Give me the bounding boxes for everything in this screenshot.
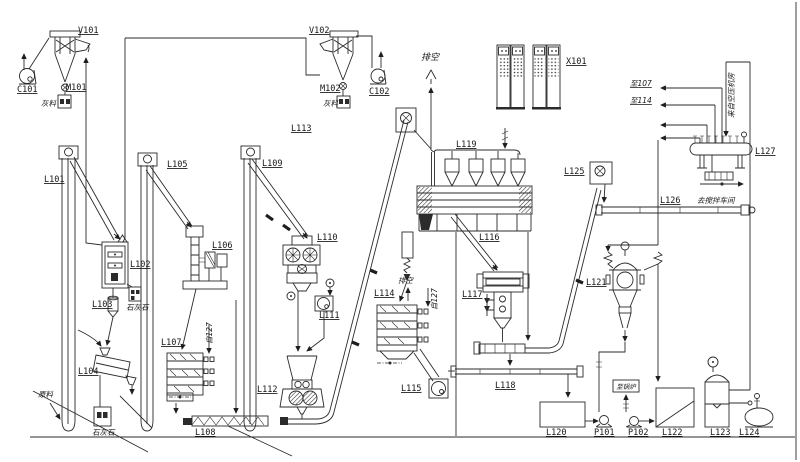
label-l116: L116 (479, 233, 499, 243)
label-l103: L103 (92, 300, 112, 310)
label-l113: L113 (291, 124, 311, 134)
limestone-label-b: 石灰石 (92, 428, 116, 437)
label-l111: L111 (319, 311, 339, 321)
cyclone-v101: C101 V101 M101 灰料 (17, 26, 102, 245)
from-127-label-b: 自127 (430, 288, 439, 310)
label-l117: L117 (462, 290, 482, 300)
label-c102: C102 (369, 87, 389, 97)
roller-mill-l110: L110 L111 (283, 233, 339, 351)
bag-filter-l114: 自127 排空 L114 L115 (374, 276, 455, 398)
label-l114: L114 (374, 289, 394, 299)
label-l122: L122 (662, 428, 682, 438)
dust-label-a: 灰料 (41, 99, 56, 108)
label-l106: L106 (212, 241, 232, 251)
label-l123: L123 (710, 428, 730, 438)
pump-p101: P101 (585, 416, 614, 439)
air-receiver-l123: L123 (705, 357, 752, 438)
label-c101: C101 (17, 85, 37, 95)
fan-c102-icon (371, 69, 385, 83)
control-cabinets-x101: X101 (496, 45, 586, 110)
to-mixing-room-label: 去搅拌车间 (697, 196, 736, 205)
dust-label-b: 灰料 (323, 99, 338, 108)
tank-l122: L122 (656, 388, 694, 438)
compressor-l124: L124 (739, 394, 773, 439)
label-v102: V102 (309, 26, 329, 36)
label-p101: P101 (594, 428, 614, 438)
label-l125: L125 (564, 167, 584, 177)
label-l112: L112 (257, 385, 277, 395)
fan-l115-icon (432, 382, 446, 396)
cabinet-icon (496, 45, 561, 110)
conveyor-l118: L118 (451, 366, 583, 397)
process-flow-diagram: 原料 C101 V101 M101 灰料 V102 M102 C102 灰料 排… (0, 0, 800, 462)
air-manifold-l127: 至107 至114 来自空压机房 L127 (630, 62, 775, 390)
bag-filter-l107: 自127 L107 (161, 300, 236, 413)
bin-l120: L120 (540, 402, 585, 438)
feeder-l117: L117 (462, 232, 529, 365)
fan-c101-icon (20, 69, 35, 84)
screen-l104: L104 石灰石 (78, 330, 136, 437)
label-l127: L127 (755, 147, 775, 157)
label-l109: L109 (262, 159, 282, 169)
elevator-l125: L125 (525, 162, 612, 353)
label-l105: L105 (167, 160, 187, 170)
vent-small-label: 排空 (398, 276, 414, 285)
conveyor-l126: L126 去搅拌车间 (596, 196, 755, 215)
to-107-label: 至107 (630, 79, 652, 88)
crusher-l112: L112 (257, 356, 324, 425)
pump-p102: 至锅炉 P102 (613, 380, 654, 438)
vent-stack: 排空 (421, 52, 440, 152)
label-m101: M101 (66, 83, 86, 93)
pump-icon (600, 416, 609, 425)
raw-material-label: 原料 (38, 390, 53, 399)
limestone-label-a: 石灰石 (126, 303, 150, 312)
label-l126: L126 (660, 196, 680, 206)
label-l108: L108 (195, 428, 215, 438)
label-l118: L118 (495, 381, 515, 391)
cyclone-battery-l119: L119 (400, 128, 532, 301)
label-l110: L110 (317, 233, 337, 243)
label-l115: L115 (401, 384, 421, 394)
label-l102: L102 (130, 260, 150, 270)
pump-icon (630, 417, 639, 426)
to-114-label: 至114 (630, 96, 652, 105)
label-l121: L121 (586, 278, 606, 288)
vent-top-label: 排空 (421, 52, 440, 63)
sender-vessel-l121: L121 (586, 140, 662, 412)
bucket-elevator-l105: L105 (138, 153, 192, 431)
bucket-elevator-l101: L101 (44, 146, 120, 431)
cyclone-cones-icon (445, 151, 525, 186)
from-127-label-a: 自127 (205, 322, 214, 344)
magnet-l103: L103 (92, 288, 118, 345)
from-air-compressor-label: 来自空压机房 (727, 72, 736, 118)
label-l119: L119 (456, 140, 476, 150)
diagram-canvas: 原料 C101 V101 M101 灰料 V102 M102 C102 灰料 排… (0, 0, 800, 462)
label-v101: V101 (78, 26, 98, 36)
label-m102: M102 (320, 84, 340, 94)
label-l120: L120 (546, 428, 566, 438)
label-l104: L104 (78, 367, 98, 377)
label-l124: L124 (739, 428, 759, 438)
label-l101: L101 (44, 175, 64, 185)
to-boiler-label: 至锅炉 (616, 383, 637, 391)
label-l107: L107 (161, 338, 181, 348)
label-p102: P102 (628, 428, 648, 438)
chute-l116: L116 (451, 214, 499, 436)
label-x101: X101 (566, 57, 586, 67)
